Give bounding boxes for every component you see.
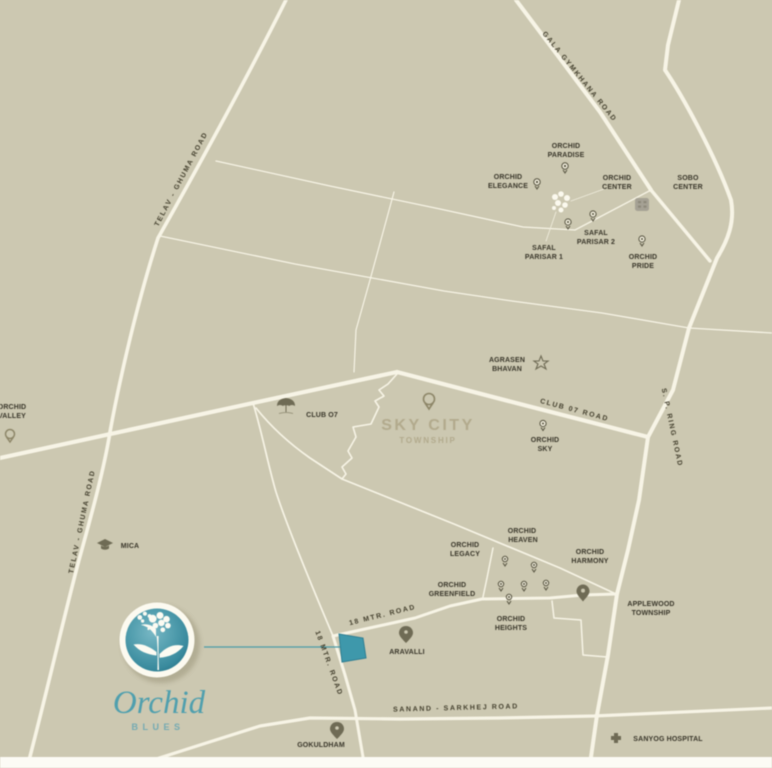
svg-text:ORCHID: ORCHID (0, 404, 26, 411)
svg-text:PARISAR 2: PARISAR 2 (577, 239, 615, 246)
svg-text:BLUES: BLUES (131, 722, 184, 732)
svg-text:LEGACY: LEGACY (450, 551, 480, 558)
svg-text:PARADISE: PARADISE (548, 152, 585, 159)
svg-text:SANAND - SARKHEJ ROAD: SANAND - SARKHEJ ROAD (393, 703, 519, 713)
svg-text:TOWNSHIP: TOWNSHIP (632, 610, 671, 617)
svg-text:GREENFIELD: GREENFIELD (429, 591, 476, 598)
svg-text:SAFAL: SAFAL (532, 245, 556, 252)
svg-text:ORCHID: ORCHID (576, 549, 605, 556)
svg-text:PRIDE: PRIDE (632, 263, 654, 270)
svg-text:TELAV - GHUMA ROAD: TELAV - GHUMA ROAD (154, 131, 210, 228)
svg-text:ORCHID: ORCHID (552, 143, 581, 150)
svg-text:TOWNSHIP: TOWNSHIP (399, 436, 456, 445)
svg-text:ORCHID: ORCHID (497, 616, 526, 623)
svg-text:HEAVEN: HEAVEN (508, 537, 538, 544)
svg-text:ORCHID: ORCHID (451, 542, 480, 549)
svg-text:ORCHID: ORCHID (508, 528, 537, 535)
svg-text:VALLEY: VALLEY (0, 413, 26, 420)
svg-text:SOBO: SOBO (677, 175, 699, 182)
svg-text:SKY: SKY (538, 446, 553, 453)
svg-text:TELAV - GHUMA ROAD: TELAV - GHUMA ROAD (68, 469, 97, 574)
svg-text:18 MTR. ROAD: 18 MTR. ROAD (313, 630, 343, 697)
svg-text:CENTER: CENTER (673, 184, 703, 191)
svg-text:CLUB O7: CLUB O7 (306, 412, 338, 419)
svg-text:AGRASEN: AGRASEN (489, 357, 525, 364)
svg-text:ARAVALLI: ARAVALLI (389, 649, 425, 656)
svg-text:S. P. RING ROAD: S. P. RING ROAD (660, 388, 684, 468)
svg-text:ORCHID: ORCHID (603, 175, 632, 182)
svg-text:PARISAR 1: PARISAR 1 (525, 254, 563, 261)
svg-text:ELEGANCE: ELEGANCE (488, 183, 528, 190)
svg-text:APPLEWOOD: APPLEWOOD (627, 601, 674, 608)
svg-text:HEIGHTS: HEIGHTS (495, 625, 527, 632)
svg-text:GOKULDHAM: GOKULDHAM (297, 742, 345, 749)
svg-text:ORCHID: ORCHID (629, 254, 658, 261)
svg-text:SKY CITY: SKY CITY (381, 417, 475, 434)
svg-text:MICA: MICA (121, 543, 140, 550)
svg-text:ORCHID: ORCHID (494, 174, 523, 181)
svg-text:HARMONY: HARMONY (571, 558, 608, 565)
svg-text:GALA GYMKHANA ROAD: GALA GYMKHANA ROAD (541, 31, 618, 124)
svg-text:SANYOG HOSPITAL: SANYOG HOSPITAL (633, 736, 703, 743)
svg-text:BHAVAN: BHAVAN (492, 366, 522, 373)
svg-text:ORCHID: ORCHID (438, 582, 467, 589)
svg-text:Orchid: Orchid (113, 685, 206, 721)
svg-text:CENTER: CENTER (602, 184, 632, 191)
svg-text:SAFAL: SAFAL (584, 230, 608, 237)
svg-text:ORCHID: ORCHID (531, 437, 560, 444)
